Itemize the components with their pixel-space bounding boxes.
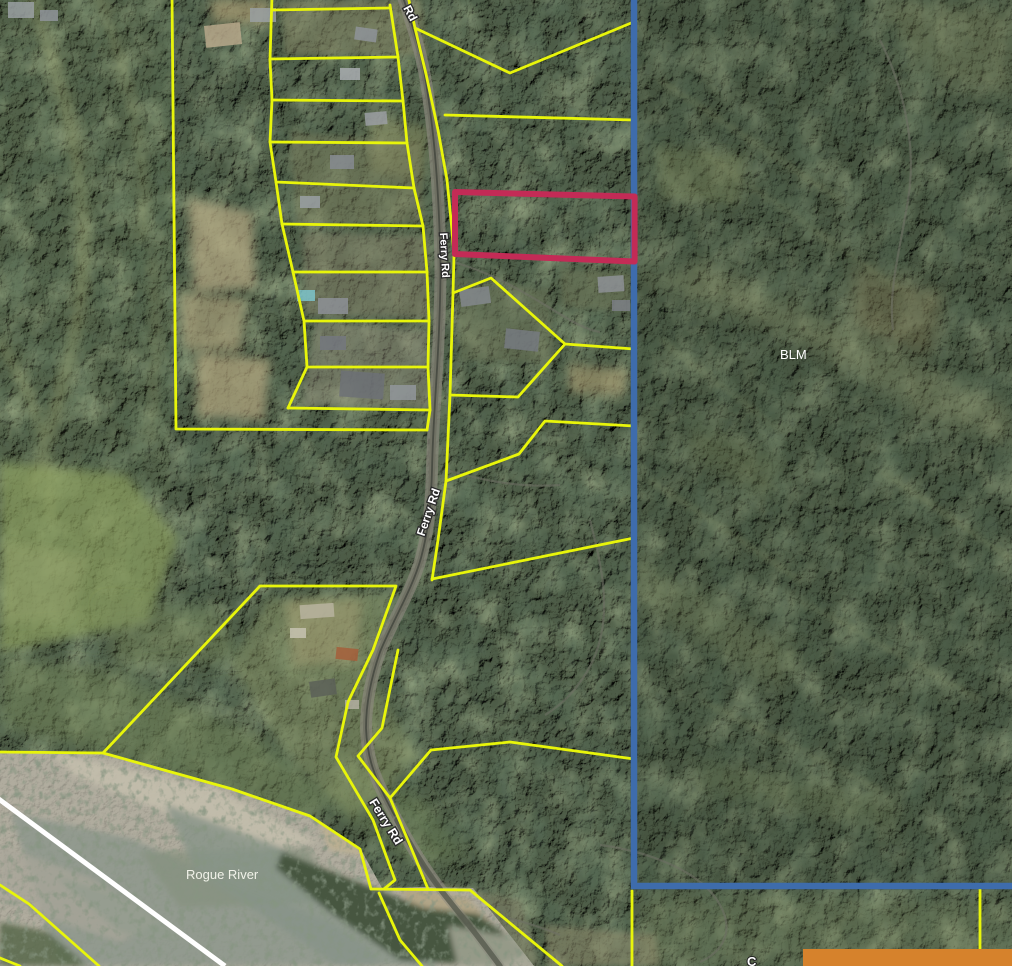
svg-text:Ferry Rd: Ferry Rd xyxy=(437,232,451,278)
svg-text:BLM: BLM xyxy=(780,347,807,362)
svg-text:Rogue River: Rogue River xyxy=(186,867,259,882)
svg-text:C: C xyxy=(747,954,757,966)
